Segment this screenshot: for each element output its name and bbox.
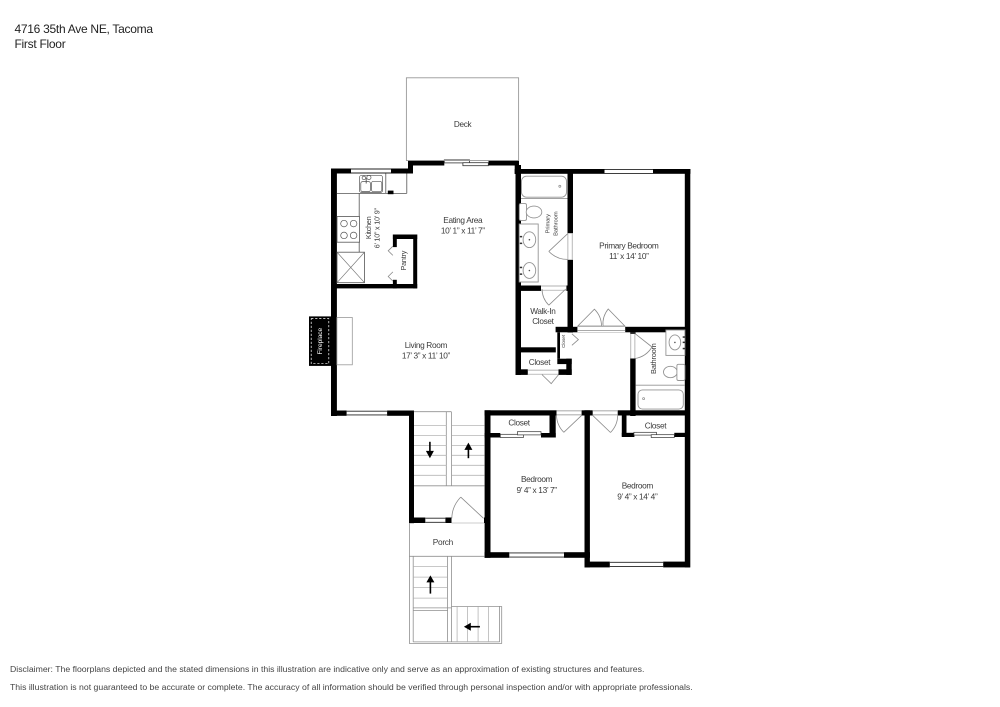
svg-text:9’ 4” x 13’ 7”: 9’ 4” x 13’ 7” — [517, 485, 558, 495]
svg-text:6’ 10” x 10’ 9”: 6’ 10” x 10’ 9” — [373, 207, 382, 248]
svg-text:Bathroom: Bathroom — [649, 343, 658, 374]
svg-text:4716 35th Ave NE, Tacoma: 4716 35th Ave NE, Tacoma — [15, 22, 154, 36]
svg-text:Pantry: Pantry — [399, 250, 408, 270]
svg-text:17’ 3” x 11’ 10”: 17’ 3” x 11’ 10” — [402, 350, 451, 360]
svg-text:Disclaimer: The floorplans dep: Disclaimer: The floorplans depicted and … — [10, 664, 644, 674]
svg-text:Primary Bedroom: Primary Bedroom — [599, 240, 659, 250]
svg-text:10’ 1” x 11’ 7”: 10’ 1” x 11’ 7” — [441, 226, 485, 236]
svg-text:9’ 4” x 14’ 4”: 9’ 4” x 14’ 4” — [617, 491, 658, 501]
svg-text:Bathroom: Bathroom — [554, 211, 560, 236]
svg-text:This illustration is not guara: This illustration is not guaranteed to b… — [10, 682, 693, 692]
svg-text:Fireplace: Fireplace — [317, 327, 324, 354]
svg-text:Bedroom: Bedroom — [521, 474, 553, 484]
svg-text:Eating Area: Eating Area — [443, 215, 483, 225]
svg-text:Primary: Primary — [545, 214, 551, 233]
svg-text:First Floor: First Floor — [15, 37, 66, 51]
svg-text:Closet: Closet — [529, 358, 551, 367]
svg-text:Porch: Porch — [433, 537, 454, 547]
svg-text:Walk-In: Walk-In — [530, 307, 556, 316]
svg-text:Deck: Deck — [454, 120, 473, 129]
svg-text:Closet: Closet — [508, 419, 530, 428]
svg-text:Closet: Closet — [561, 334, 566, 348]
svg-text:Closet: Closet — [532, 317, 554, 326]
svg-text:Bedroom: Bedroom — [622, 481, 654, 491]
svg-text:11’ x 14’ 10”: 11’ x 14’ 10” — [609, 251, 649, 261]
svg-text:Closet: Closet — [645, 422, 667, 431]
svg-text:Living Room: Living Room — [405, 340, 448, 350]
